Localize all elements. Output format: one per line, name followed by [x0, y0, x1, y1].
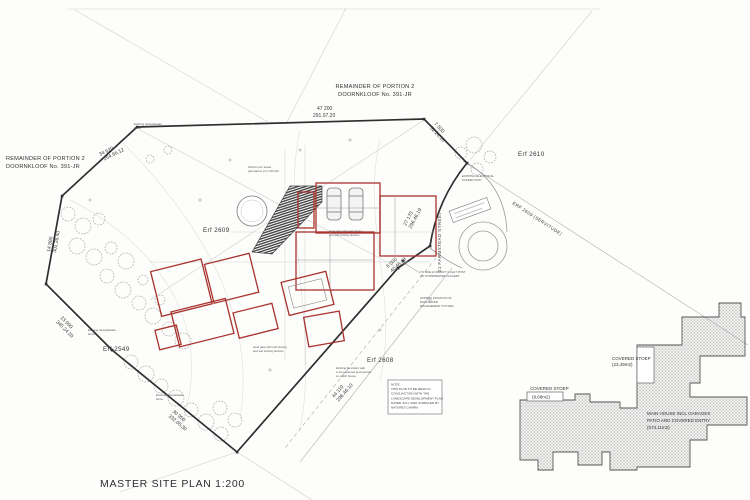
- sewer-note: 100mm pvc sewer pipe laid to min 1:40 fa…: [248, 165, 279, 173]
- dim-top: 47 200 291.07.20: [313, 106, 335, 119]
- svg-text:21 FARMSTEAD STREET: 21 FARMSTEAD STREET: [437, 211, 442, 272]
- svg-text:pipe laid to min 1:40 fall: pipe laid to min 1:40 fall: [248, 169, 279, 173]
- site-plan-sheet: 47 200 291.07.20 34 620 264.56.12 14 890…: [0, 0, 750, 500]
- garage-cars: [327, 188, 363, 220]
- main-house-label-3: (573,11m2): [647, 425, 670, 430]
- fence-note-2: Existing wire/palisade fence: [88, 328, 116, 336]
- dim-bearing: 291.07.20: [313, 113, 335, 119]
- svg-text:fence: fence: [134, 126, 141, 130]
- site-plan-drawing: 47 200 291.07.20 34 620 264.56.12 14 890…: [0, 0, 750, 500]
- svg-text:THIS PLAN TO BE READ IN: THIS PLAN TO BE READ IN: [391, 387, 430, 391]
- stoep1-area: (23,49m2): [612, 362, 633, 367]
- svg-text:fence: fence: [156, 397, 163, 401]
- servitude-street-label: ERF 2609 (SERVITUDE): [511, 201, 563, 237]
- gate-label-box: [449, 198, 491, 223]
- plan-title: MASTER SITE PLAN 1:200: [100, 478, 245, 490]
- svg-text:ON STORMWATER CULVERT: ON STORMWATER CULVERT: [420, 274, 460, 278]
- main-house-label-2: PATIO AND COVERED ENTRY: [647, 418, 710, 423]
- hydrant-leader: [404, 263, 420, 273]
- remainder-left-line2: DOORNKLOOF No. 391-JR: [6, 164, 80, 170]
- svg-text:NATURES CHARM: NATURES CHARM: [391, 406, 418, 410]
- gate-note-1: steel gate with self closing and self lo…: [329, 229, 363, 237]
- storm-system-note: APPROX POSITION OF RAIN WATER MANAGEMENT…: [420, 296, 454, 308]
- remainder-left-line1: REMAINDER OF PORTION 2: [6, 156, 85, 162]
- building-grid-lines: [150, 145, 440, 365]
- svg-text:NOTE:: NOTE:: [391, 383, 401, 387]
- pool: [281, 271, 334, 315]
- svg-text:LANDSCAPE DEVELOPMENT PLAN: LANDSCAPE DEVELOPMENT PLAN: [391, 396, 443, 400]
- mid-block: [296, 232, 374, 290]
- erf-west-label: Erf 2549: [103, 346, 130, 353]
- contour-lines: [70, 130, 386, 430]
- dim-west: 14 890 301.26.40: [46, 229, 62, 253]
- erf-site-label: Erf 2609: [203, 227, 230, 234]
- car-icon: [349, 188, 363, 220]
- main-house-label-1: MAIN HOUSE INCL GARAGES: [647, 411, 710, 416]
- gate-note-2: steel gate with self closing and self lo…: [253, 345, 287, 353]
- dim-northeast: 7 500 52.24.10: [428, 121, 450, 144]
- remainder-portion-top: REMAINDER OF PORTION 2 DOORNKLOOF No. 39…: [336, 84, 415, 98]
- footprint-inset: COVERED STOEP (23,49m2) COVERED STOEP (9…: [520, 303, 747, 470]
- svg-text:ERF 2609 (SERVITUDE): ERF 2609 (SERVITUDE): [511, 201, 563, 237]
- fire-hydrant-note: TO FIRE HYDRANT / LIGHT POST ON STORMWAT…: [420, 270, 466, 278]
- svg-text:MANAGEMENT SYSTEM: MANAGEMENT SYSTEM: [420, 304, 454, 308]
- erf-south-label: Erf 2608: [367, 357, 394, 364]
- stoep1-label: COVERED STOEP: [612, 356, 651, 361]
- dim-east-short: 6 000 40.46.19: [385, 252, 408, 274]
- dim-southwest: 23 990 345.24.20: [54, 315, 78, 339]
- boundary-wall-note: Existing boundary wall to be plastered a…: [336, 366, 371, 378]
- stoep2-area: (9,68m2): [532, 395, 551, 400]
- dim-length: 47 200: [317, 106, 333, 112]
- remainder-top-line1: REMAINDER OF PORTION 2: [336, 84, 415, 90]
- patio-block: [304, 311, 345, 347]
- remainder-portion-left: REMAINDER OF PORTION 2 DOORNKLOOF No. 39…: [6, 156, 85, 170]
- farmstead-street-label: 21 FARMSTEAD STREET: [437, 211, 442, 272]
- svg-text:CONJUNCTION WITH THE: CONJUNCTION WITH THE: [391, 392, 429, 396]
- dim-bearing: 301.26.40: [52, 230, 62, 253]
- dim-southeast: 44 110 296.46.10: [331, 378, 355, 403]
- svg-text:CONNECTION: CONNECTION: [462, 178, 481, 182]
- covered-stoep-1: [637, 347, 654, 383]
- svg-text:to match house: to match house: [336, 374, 356, 378]
- svg-text:DATED JULY 2022 COMPILED BY: DATED JULY 2022 COMPILED BY: [391, 401, 439, 405]
- remainder-top-line2: DOORNKLOOF No. 391-JR: [338, 92, 412, 98]
- svg-text:and self locking devices: and self locking devices: [253, 349, 284, 353]
- stoep2-label: COVERED STOEP: [530, 386, 569, 391]
- erf-northeast-label: Erf 2610: [518, 151, 545, 158]
- note-box: NOTE: THIS PLAN TO BE READ IN CONJUNCTIO…: [388, 380, 443, 414]
- round-structure: [237, 196, 267, 226]
- svg-text:and self locking devices: and self locking devices: [329, 233, 360, 237]
- dim-east: 27 170 296.46.19: [402, 204, 423, 229]
- svg-text:fence: fence: [88, 332, 95, 336]
- car-icon: [327, 188, 341, 220]
